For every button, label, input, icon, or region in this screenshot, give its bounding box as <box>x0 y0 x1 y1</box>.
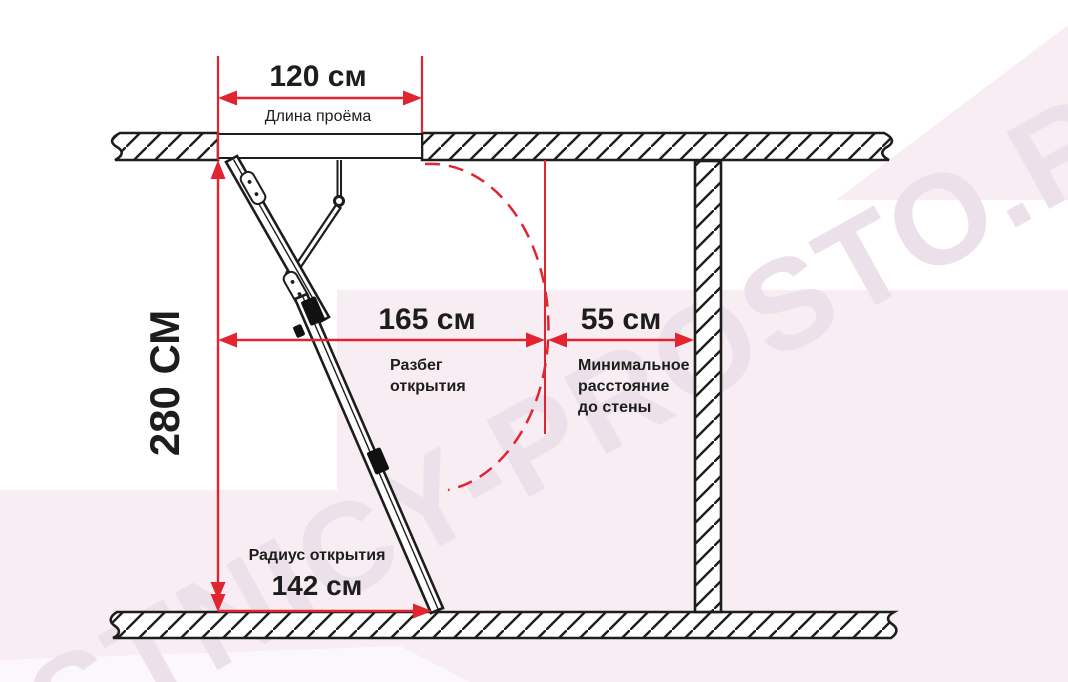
dim-120-arrow-right <box>403 91 422 106</box>
dim-165-arrow-left <box>218 333 237 348</box>
wall-distance-value: 55 см <box>581 305 662 335</box>
floor <box>111 612 897 638</box>
dim-165-arrow-right <box>526 333 545 348</box>
hatch-opening-frame <box>218 134 422 158</box>
dim-120-arrow-left <box>218 91 237 106</box>
opening-radius-label: Радиус открытия <box>249 545 386 566</box>
dim-280-arrow-up <box>211 160 226 179</box>
opening-span-label: Разбег открытия <box>390 355 466 397</box>
wall <box>695 161 721 612</box>
wall-distance-label: Минимальное расстояние до стены <box>578 355 690 418</box>
ceiling-left-section <box>112 133 218 160</box>
dim-55-arrow-right <box>675 333 694 348</box>
opening-radius-value: 142 см <box>272 572 363 600</box>
opening-length-value: 120 см <box>269 62 366 92</box>
attic-ladder-diagram: LESTNICY-PROSTO.RU <box>0 0 1068 682</box>
clamp-knob <box>292 324 305 339</box>
ceiling-right-section <box>422 133 892 160</box>
dim-55-arrow-left <box>548 333 567 348</box>
ceiling-height-value: 280 СМ <box>144 310 186 457</box>
opening-span-value: 165 см <box>378 305 475 335</box>
opening-length-label: Длина проёма <box>265 106 372 127</box>
